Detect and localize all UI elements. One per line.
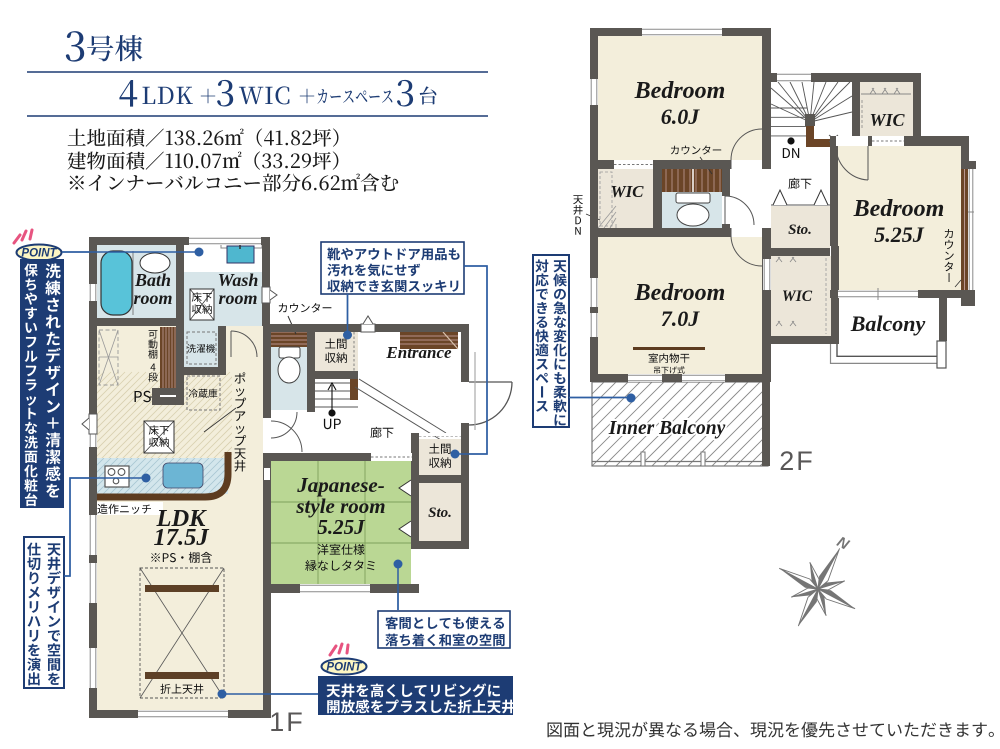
svg-text:7.0J: 7.0J: [661, 306, 701, 331]
svg-text:N: N: [834, 533, 853, 554]
svg-text:Bedroom: Bedroom: [634, 280, 726, 306]
svg-text:Bedroom: Bedroom: [634, 78, 726, 104]
svg-text:WIC: WIC: [782, 288, 813, 305]
svg-text:5.25J: 5.25J: [874, 222, 925, 247]
svg-text:Bath: Bath: [134, 270, 171, 290]
svg-text:POINT: POINT: [21, 248, 57, 260]
svg-text:Sto.: Sto.: [788, 222, 812, 238]
svg-text:room: room: [218, 288, 257, 308]
svg-text:Wash: Wash: [218, 270, 259, 290]
svg-text:1F: 1F: [269, 707, 305, 737]
svg-text:WIC: WIC: [869, 110, 905, 130]
svg-text:Sto.: Sto.: [428, 505, 452, 521]
svg-text:5.25J: 5.25J: [317, 515, 366, 539]
svg-text:POINT: POINT: [326, 662, 362, 674]
svg-text:Bedroom: Bedroom: [853, 196, 945, 222]
svg-text:room: room: [133, 288, 172, 308]
svg-text:6.0J: 6.0J: [661, 104, 701, 129]
svg-text:Balcony: Balcony: [850, 311, 926, 336]
svg-text:17.5J: 17.5J: [153, 524, 209, 551]
svg-text:2F: 2F: [779, 446, 815, 476]
svg-text:WIC: WIC: [610, 182, 644, 201]
svg-text:Inner Balcony: Inner Balcony: [608, 418, 726, 439]
